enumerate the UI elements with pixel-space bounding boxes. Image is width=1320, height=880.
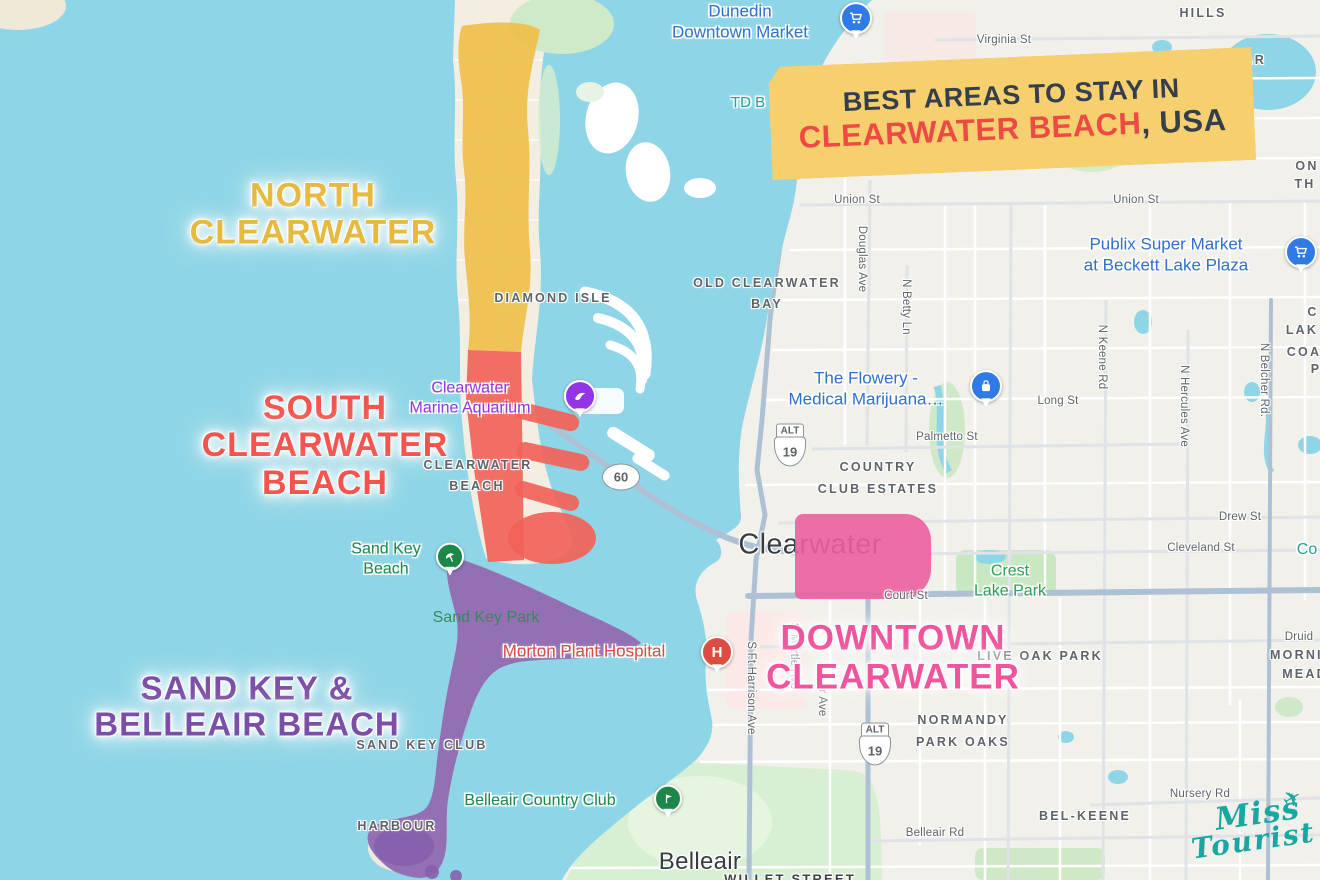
street-label-n-betty-ln: N Betty Ln [900,279,912,335]
street-label-union-st-west: Union St [834,194,880,206]
street-label-s-ft-harrison-ave: S Ft Harrison Ave [745,641,757,734]
route-shield-60: 60 [602,464,640,491]
area-label-country-club-estates-2: CLUB ESTATES [818,482,938,496]
banner-suffix: , USA [1141,102,1228,141]
poi-label-the-flowery[interactable]: The Flowery - Medical Marijuana… [789,368,944,409]
hospital-h-icon: H [712,645,723,660]
dolphin-icon [573,389,587,403]
area-label-normandy-park-oaks: NORMANDY [917,713,1008,727]
street-label-court-st: Court St [884,590,928,602]
area-label-clearwater-beach: CLEARWATER [423,458,532,472]
street-label-drew-st: Drew St [1219,511,1261,523]
belleair-country-club-pin[interactable] [654,785,682,813]
area-label-mornin-fragment: MORNIN [1270,648,1320,662]
dunedin-market-pin[interactable] [840,2,872,34]
area-label-th-fragment: TH [1294,177,1315,191]
street-label-belleair-rd: Belleair Rd [906,827,964,839]
route-shield-alt-19-north: ALT 19 [774,424,806,467]
shopping-cart-icon [1294,245,1308,259]
sand-key-beach-pin[interactable] [436,543,464,571]
poi-label-sand-key-beach[interactable]: Sand Key Beach [351,539,420,578]
area-label-on-fragment: ON [1295,159,1318,173]
beach-umbrella-icon [444,551,456,563]
area-label-country-club-estates: COUNTRY [840,460,917,474]
title-banner: BEST AREAS TO STAY IN CLEARWATER BEACH, … [768,47,1256,180]
area-label-sand-key-club: SAND KEY CLUB [356,738,487,752]
area-label-diamond-isle: DIAMOND ISLE [494,291,611,305]
area-label-normandy-park-oaks-2: PARK OAKS [916,735,1010,749]
street-label-long-st: Long St [1037,395,1078,407]
area-label-lak-fragment: LAK [1286,323,1318,337]
publix-pin[interactable] [1285,236,1317,268]
poi-label-publix-super-market[interactable]: Publix Super Market at Beckett Lake Plaz… [1084,234,1248,275]
street-label-palmetto-st: Palmetto St [916,431,978,443]
flowery-pin[interactable] [970,370,1002,402]
shopping-cart-icon [849,11,863,25]
area-label-coa-fragment: COA [1287,345,1320,359]
region-title-downtown-clearwater: DOWNTOWN CLEARWATER [766,620,1020,697]
area-label-p-fragment: P [1311,362,1320,376]
area-label-harbour: HARBOUR [357,819,436,833]
area-label-bel-keene: BEL-KEENE [1039,809,1131,823]
street-label-n-keene-rd: N Keene Rd [1096,325,1108,390]
route-shield-alt-19-south: ALT 19 [859,723,891,766]
aquarium-pin[interactable] [564,380,596,412]
street-label-n-hercules-ave: N Hercules Ave [1178,365,1190,447]
street-label-virginia-st: Virginia St [977,34,1031,46]
street-label-n-belcher-rd: N Belcher Rd. [1258,343,1270,417]
region-title-sand-key-belleair-beach: SAND KEY & BELLEAIR BEACH [94,671,400,744]
shopping-bag-icon [979,379,993,393]
area-label-c-fragment: C [1307,305,1318,319]
miss-tourist-logo: ✈ Miss Tourist [1185,790,1315,874]
logo-word-tourist: Tourist [1189,815,1317,865]
map-canvas[interactable]: Clearwater Belleair HILLS GREENBRIAR DIA… [0,0,1320,880]
street-label-druid-fragment: Druid [1285,631,1313,643]
street-label-cleveland-st: Cleveland St [1167,542,1235,554]
area-label-old-clearwater-bay: OLD CLEARWATER [693,276,841,290]
poi-label-co-fragment[interactable]: Co [1297,540,1317,560]
golf-flag-icon [662,793,674,805]
region-title-north-clearwater: NORTH CLEARWATER [190,178,437,253]
poi-label-clearwater-marine-aquarium[interactable]: Clearwater Marine Aquarium [410,378,531,417]
area-label-willet-street: WILLET STREET [724,872,856,880]
poi-label-dunedin-downtown-market[interactable]: Dunedin Downtown Market [672,1,808,42]
area-label-hills: HILLS [1179,6,1226,20]
area-label-mead-fragment: MEAD [1282,667,1320,681]
street-label-union-st-east: Union St [1113,194,1159,206]
region-downtown-clearwater [795,514,931,599]
poi-label-sand-key-park[interactable]: Sand Key Park [433,608,540,628]
street-label-douglas-ave: Douglas Ave [856,226,868,293]
poi-label-belleair-country-club[interactable]: Belleair Country Club [464,791,615,811]
morton-plant-hospital-pin[interactable]: H [701,636,733,668]
poi-label-crest-lake-park[interactable]: Crest Lake Park [974,561,1046,600]
area-label-old-clearwater-bay-2: BAY [751,297,783,311]
area-label-clearwater-beach-2: BEACH [449,479,504,493]
poi-label-morton-plant-hospital[interactable]: Morton Plant Hospital [503,642,666,663]
poi-label-td-fragment[interactable]: TD B [731,94,765,112]
